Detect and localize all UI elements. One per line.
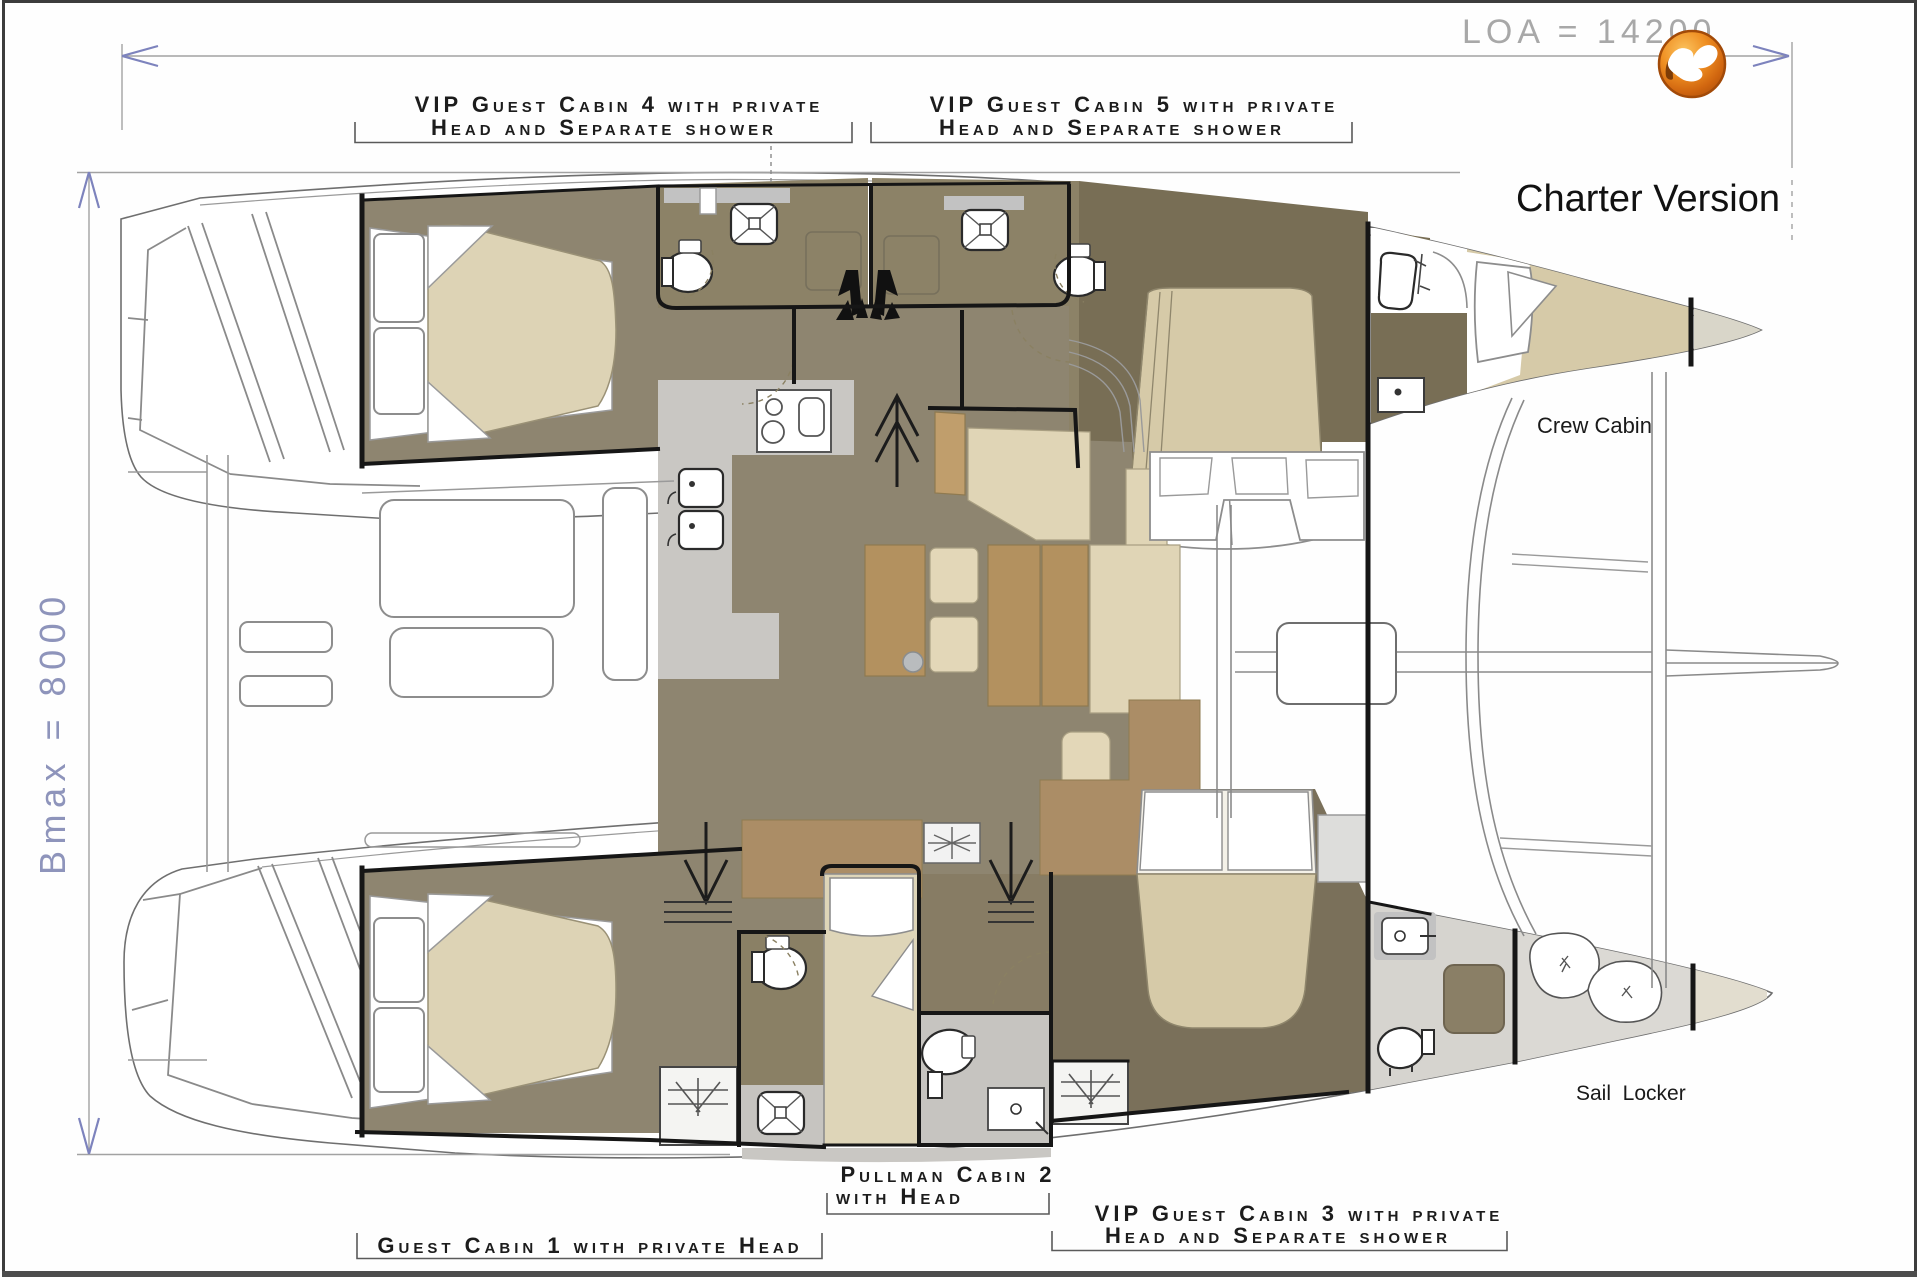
svg-text:Bmax = 8000: Bmax = 8000 xyxy=(32,590,73,875)
svg-text:Sail Locker: Sail Locker xyxy=(1576,1082,1686,1105)
svg-text:Guest Cabin 1 with private Hea: Guest Cabin 1 with private Head xyxy=(377,1233,802,1258)
svg-text:Crew Cabin: Crew Cabin xyxy=(1537,413,1652,438)
svg-text:Head and Separate shower: Head and Separate shower xyxy=(1105,1223,1451,1248)
svg-text:Head and Separate shower: Head and Separate shower xyxy=(939,115,1285,140)
svg-text:Head and Separate shower: Head and Separate shower xyxy=(431,115,777,140)
svg-text:VIP Guest Cabin 4 with private: VIP Guest Cabin 4 with private xyxy=(415,92,824,117)
svg-text:with Head: with Head xyxy=(836,1184,964,1209)
svg-text:VIP Guest Cabin 5 with private: VIP Guest Cabin 5 with private xyxy=(930,92,1339,117)
svg-text:Charter Version: Charter Version xyxy=(1516,178,1780,220)
